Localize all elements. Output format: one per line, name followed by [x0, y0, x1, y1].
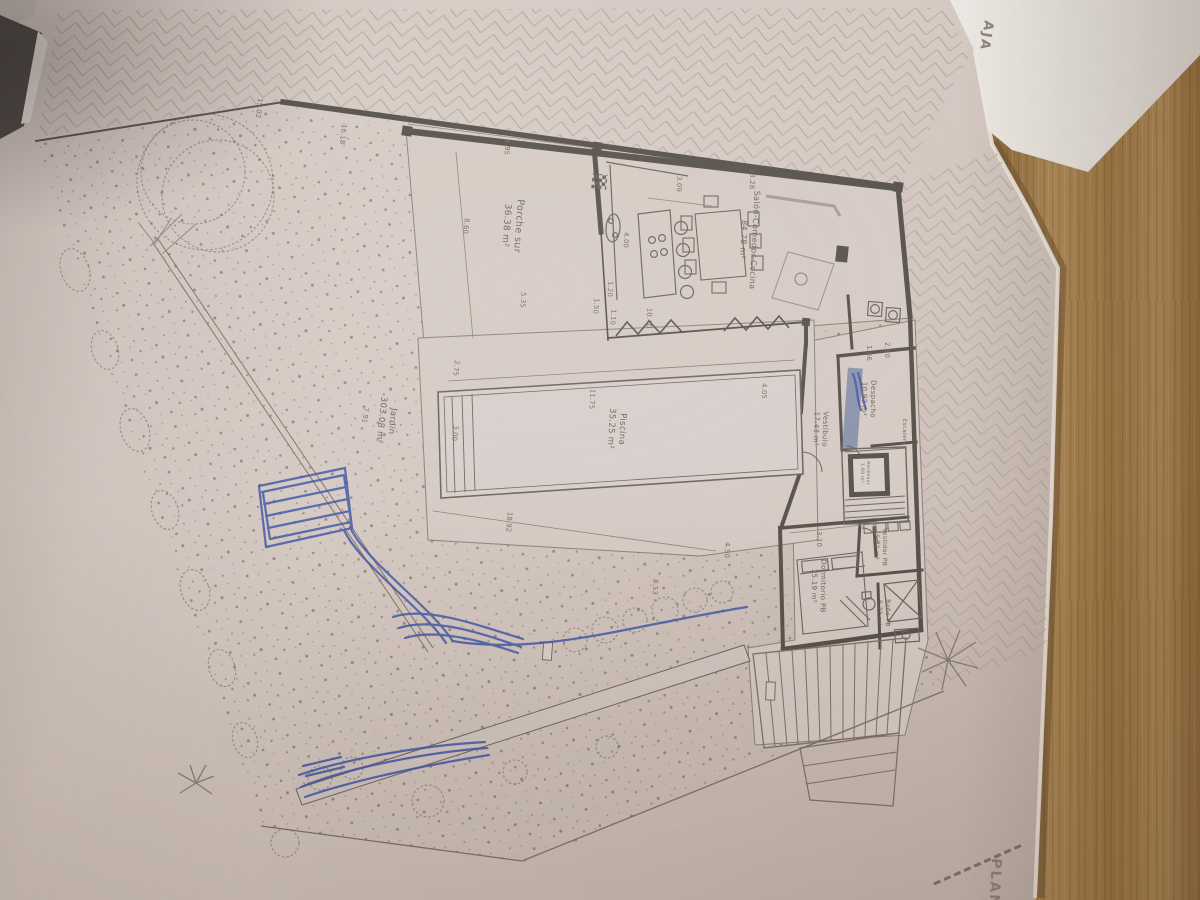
room-area: 15.19 m² [810, 569, 819, 603]
dim-label: 13.28 [748, 169, 757, 190]
dim-label: 10.40 [645, 308, 654, 329]
room-label: Escalera [901, 419, 907, 446]
dim-label: 18.92 [504, 512, 513, 533]
dim-label: 4.00 [622, 232, 631, 248]
room-area: 1.69 m² [859, 463, 865, 483]
dim-label: 5.35 [518, 292, 527, 308]
room-area: 6.22 m² [876, 600, 883, 626]
room-label: Vestidor PB [881, 528, 889, 567]
sheet-title-bottom: PLAN [985, 858, 1004, 900]
room-label: Piscina [616, 413, 628, 446]
room-label: Baño PB [884, 599, 891, 627]
dim-label: 2.80 [883, 342, 891, 358]
checker-tile-square [591, 173, 607, 189]
dim-label: 4.05 [760, 383, 769, 399]
dim-label: 1.86 [865, 345, 873, 361]
dim-label: 8.60 [461, 218, 470, 235]
room-label: Vestíbulo [820, 411, 829, 447]
room-label: Dormitorio PB [819, 559, 828, 613]
floor-plan-photo-svg: Porche sur 36.38 m² Salón-Comedor-Cocina… [0, 0, 1200, 900]
dim-label: 3.10 [815, 531, 823, 547]
dim-label: 1.50 [591, 298, 600, 314]
dim-label: 8.53 [651, 579, 660, 595]
photo-of-floor-plan: Porche sur 36.38 m² Salón-Comedor-Cocina… [0, 0, 1200, 900]
dim-label: 11.75 [587, 389, 596, 410]
room-area: 17.43 m² [811, 411, 820, 446]
dim-label: 3.09 [675, 176, 684, 192]
dim-label: 3.00 [450, 425, 459, 442]
room-area: 6.72 m² [873, 534, 880, 560]
dim-label: 1.20 [606, 281, 615, 297]
dim-label: 6.95 [502, 139, 511, 155]
dim-label: 2.75 [451, 360, 460, 377]
dim-label: 1.10 [608, 309, 617, 325]
room-label: Ascensor [865, 461, 871, 485]
room-area: 10.92 m² [860, 382, 869, 416]
dim-label: 4.50 [723, 542, 732, 558]
room-label: Despacho [869, 380, 878, 418]
